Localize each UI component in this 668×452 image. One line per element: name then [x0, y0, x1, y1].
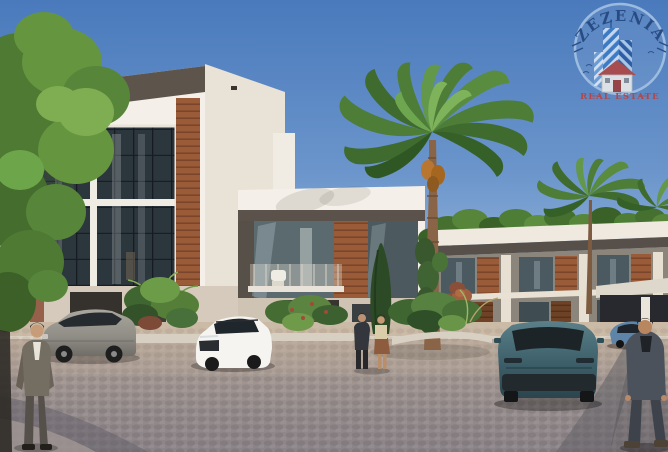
logo-tagline-text: REAL ESTATE — [580, 92, 660, 102]
balcony — [248, 264, 344, 292]
screenshot-canvas: ZEZENIA REAL ESTATE — [0, 0, 668, 452]
scene-render: ZEZENIA REAL ESTATE — [0, 0, 668, 452]
suv-teal — [494, 321, 604, 411]
balcony-chair — [271, 270, 286, 281]
middle-villa-fascia — [238, 210, 425, 221]
